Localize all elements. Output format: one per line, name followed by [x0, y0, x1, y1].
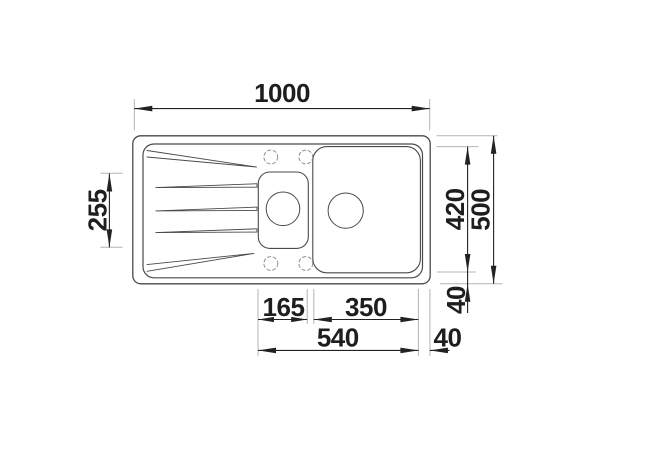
sink-dimension-drawing: 1000 255 420 500 40 165 350 540 40 — [0, 0, 647, 449]
half-bowl-drain-hole — [266, 192, 300, 226]
label-rim-offset-right: 40 — [441, 286, 471, 314]
arrow-right-icon — [400, 317, 418, 323]
arrow-up-icon — [107, 174, 113, 192]
sink-body — [133, 136, 430, 284]
label-overall-depth: 500 — [466, 189, 496, 231]
arrow-left-icon — [258, 348, 276, 354]
arrow-left-icon — [134, 106, 152, 112]
label-bowls-span: 540 — [317, 322, 359, 352]
label-overall-width: 1000 — [254, 78, 310, 108]
main-bowl-drain-hole — [328, 193, 363, 228]
arrow-up-icon — [465, 147, 471, 165]
label-rim-offset-bottom: 40 — [434, 322, 462, 352]
label-half-bowl-width: 165 — [263, 292, 305, 322]
label-drainboard-section: 255 — [82, 189, 112, 231]
arrow-down-icon — [465, 254, 471, 272]
arrow-right-icon — [400, 348, 418, 354]
arrow-down-icon — [491, 266, 497, 284]
label-main-bowl-width: 350 — [345, 292, 387, 322]
drawing-canvas: 1000 255 420 500 40 165 350 540 40 — [0, 0, 647, 449]
arrow-right-icon — [412, 106, 430, 112]
arrow-up-icon — [491, 136, 497, 154]
